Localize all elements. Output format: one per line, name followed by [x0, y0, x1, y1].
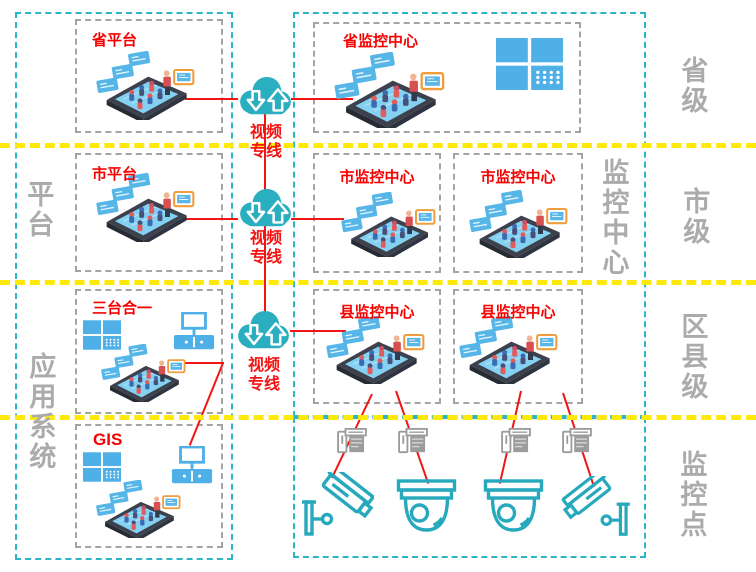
cloud-upload-download-icon: [236, 188, 294, 232]
dome-camera-icon: [396, 479, 457, 535]
side-label-monitoring-point: 监控点: [677, 450, 705, 540]
video-line-label-1-line1: 视频: [235, 123, 297, 142]
side-label-application-system: 应用系统: [26, 352, 54, 472]
box-title-county-monitoring-center-2: 县监控中心: [453, 301, 583, 322]
video-line-label-3-line2: 专线: [233, 375, 295, 394]
box-title-city-monitoring-center-1: 市监控中心: [313, 166, 441, 187]
cloud-upload-download-icon: [236, 76, 294, 120]
video-line-label-3: 视频 专线: [233, 356, 295, 394]
video-line-label-3-line1: 视频: [233, 356, 295, 375]
connection-line: [291, 218, 344, 220]
box-title-city-monitoring-center-2: 市监控中心: [453, 166, 583, 187]
video-line-label-2: 视频 专线: [235, 229, 297, 267]
phone-meeting-illustration: [95, 480, 181, 538]
level-divider-county-point: [0, 415, 756, 420]
box-title-province-monitoring-center: 省监控中心: [313, 30, 448, 51]
video-line-label-2-line1: 视频: [235, 229, 297, 248]
nvr-server-icon: [337, 428, 367, 454]
video-line-label-1-line2: 专线: [235, 142, 297, 161]
video-wall-grid-icon: [83, 452, 121, 482]
level-divider-province-city: [0, 143, 756, 148]
box-title-city-platform: 市平台: [92, 163, 137, 184]
phone-meeting-illustration: [100, 344, 186, 402]
video-line-label-2-line2: 专线: [235, 248, 297, 267]
box-title-gis: GIS: [93, 430, 122, 450]
dome-camera-icon: [483, 479, 544, 535]
bullet-camera-icon: [558, 476, 634, 538]
nvr-server-icon: [501, 428, 531, 454]
video-wall-grid-icon: [496, 38, 563, 90]
side-label-district-county-level: 区县级: [678, 312, 706, 402]
bullet-camera-icon: [302, 472, 374, 538]
phone-meeting-illustration: [468, 190, 568, 258]
nvr-server-icon: [398, 428, 428, 454]
level-divider-city-county: [0, 280, 756, 285]
phone-meeting-illustration: [325, 316, 425, 384]
video-line-label-1: 视频 专线: [235, 123, 297, 161]
side-label-city-level: 市级: [680, 187, 708, 247]
nvr-server-icon: [562, 428, 592, 454]
network-architecture-diagram: 省平台 市平台 三台合一 GIS 省监控中心 市监控中心 市监控中心 县监控中心…: [0, 0, 756, 572]
connection-line: [183, 362, 224, 364]
side-label-province-level: 省级: [678, 56, 706, 116]
phone-meeting-illustration: [340, 192, 436, 257]
box-title-province-platform: 省平台: [92, 29, 137, 50]
side-label-monitoring-center: 监控中心: [599, 158, 627, 278]
box-title-three-in-one: 三台合一: [92, 297, 152, 318]
cloud-upload-download-icon: [234, 310, 292, 354]
box-title-county-monitoring-center-1: 县监控中心: [313, 301, 441, 322]
phone-meeting-illustration: [95, 50, 195, 120]
phone-meeting-illustration: [458, 316, 558, 384]
phone-meeting-illustration: [333, 52, 445, 128]
side-label-platform: 平台: [24, 180, 52, 240]
